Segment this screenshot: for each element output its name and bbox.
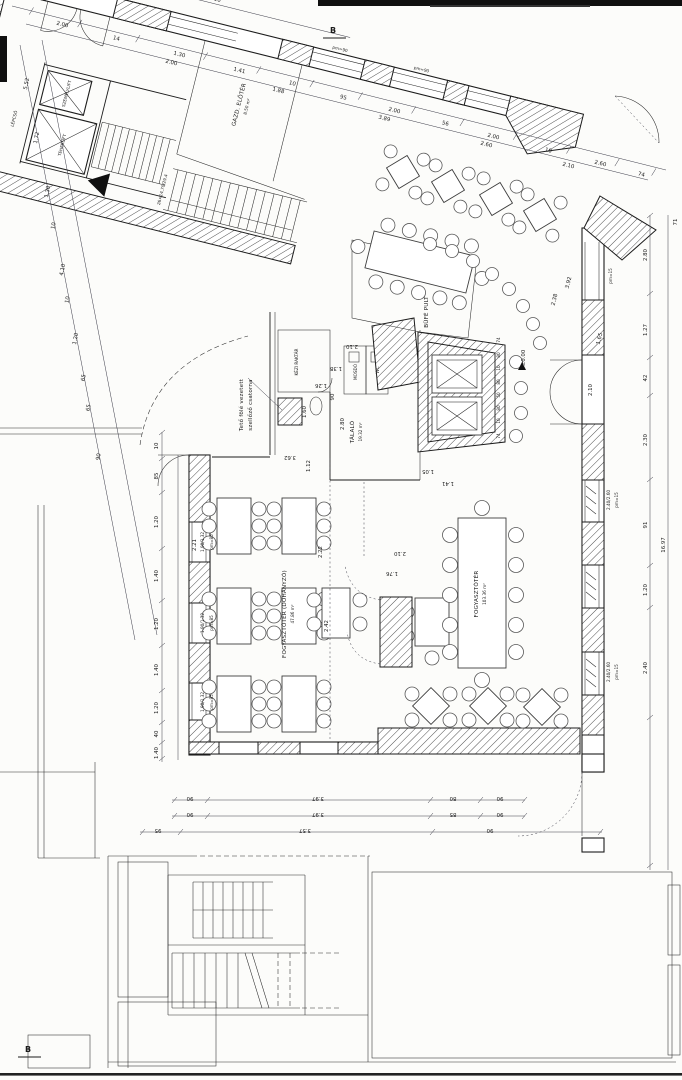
- window-tag: 1.90/1.32: [200, 692, 205, 712]
- dimension-label: 10: [544, 147, 553, 155]
- chair: [389, 279, 406, 296]
- window-tag: 2.40/2.60: [606, 662, 611, 682]
- room-area-servery: 19.32 m²: [358, 422, 363, 441]
- dimension-label: 5.52: [23, 77, 31, 90]
- dimension-label: 4.10: [59, 263, 67, 276]
- dimension-label: 1.20: [643, 583, 649, 596]
- dimension-label: 90: [486, 827, 493, 833]
- dimension-label: 1.12: [306, 460, 312, 472]
- dimension-label: 1.20: [154, 617, 160, 630]
- dimension-label: 2.80: [340, 417, 346, 430]
- tilted-street-block: SZEMÉLYLIFT TEHERLIFT LÉPCSŐ 26×14,70/29…: [0, 0, 590, 324]
- dimension-label: 90: [95, 452, 102, 460]
- window-tag: pm=85: [209, 694, 214, 710]
- dimension-label: 2.80: [643, 248, 649, 261]
- room-label-stairs: LÉPCSŐ: [10, 109, 19, 127]
- dimension-label: 1.27: [643, 324, 649, 336]
- stair-note: 26×14,70/29,4: [156, 173, 169, 205]
- room-label-buffet: BÜFÉ PULT: [422, 296, 430, 328]
- dimension-label: 1.60: [302, 405, 308, 418]
- dimension-label: 1.20: [154, 515, 160, 528]
- dimension-label: 2.42: [324, 620, 330, 632]
- dimension-label: 74: [496, 337, 501, 343]
- room-area-vestibule: 8.50 m²: [242, 98, 251, 115]
- dimension-label: 90: [186, 795, 193, 801]
- top-right-entry: [615, 96, 659, 143]
- section-marker-top: B: [330, 26, 336, 35]
- diamond-table: [375, 144, 432, 201]
- room-label-dining-main: FOGYASZTÓTÉR: [472, 571, 480, 618]
- dimension-label: 2.10: [562, 162, 576, 171]
- scan-artifacts: [0, 0, 682, 1076]
- dining-tables-left: [202, 498, 331, 732]
- dimension-label: 80: [496, 405, 501, 411]
- dimension-label: 40: [154, 730, 160, 737]
- dimension-label: 91: [643, 522, 649, 529]
- dimension-label: 2.10: [345, 343, 358, 349]
- dimension-label: 10: [288, 80, 297, 88]
- window-tag: pm=85: [209, 615, 214, 631]
- dimension-label: 2.10: [588, 383, 594, 396]
- dimension-label: 1.88: [272, 87, 286, 96]
- dimension-label: 10: [64, 295, 71, 303]
- dimension-label: 1.26: [314, 382, 327, 388]
- dimension-label: 10: [496, 418, 501, 424]
- dimension-label: 1.38: [329, 365, 342, 371]
- vent-note-line1: Tető fölé vezetett: [238, 378, 245, 432]
- dimension-label: 2.00: [388, 107, 402, 116]
- dining-pier: [380, 597, 412, 667]
- dimension-label: 95: [339, 94, 347, 101]
- dimension-label: 3.97: [312, 795, 324, 801]
- diamond-table: [468, 171, 525, 228]
- room-area-dining-smoking: 47.86 m²: [290, 604, 295, 623]
- dimension-label: 95: [155, 827, 162, 833]
- dimension-label: 1.05: [422, 468, 434, 474]
- dimension-label: 85: [154, 473, 160, 480]
- stair-direction-arrow: [85, 169, 110, 197]
- dimension-label: 1.76: [385, 570, 398, 576]
- dimension-label: 1.41: [233, 67, 246, 76]
- room-area-dining-main: 103.36 m²: [482, 583, 487, 605]
- dimension-label: 80: [496, 352, 501, 358]
- dimension-label: 2.00: [165, 59, 179, 68]
- floorplan-drawing: SZEMÉLYLIFT TEHERLIFT LÉPCSŐ 26×14,70/29…: [0, 0, 682, 1080]
- room-label-servery: TÁLALÓ: [349, 420, 356, 444]
- dimension-label: 10: [496, 365, 501, 371]
- dimension-label: 2.10: [393, 550, 406, 556]
- dimension-label: 10: [50, 221, 57, 229]
- dimension-label: 2.00: [56, 21, 70, 30]
- dimension-label: 65: [85, 404, 92, 412]
- dimension-label: 1.40: [154, 663, 160, 676]
- diamond-table: [420, 158, 477, 215]
- dimension-label: 50: [496, 392, 501, 398]
- chair: [367, 273, 384, 290]
- dimension-label: 3.97: [312, 811, 324, 817]
- dimension-label: 56: [441, 120, 450, 128]
- level-mark: ±0.00: [521, 349, 527, 366]
- dimension-label: 2.60: [594, 160, 608, 169]
- dimension-label: 74: [496, 433, 501, 439]
- dining-tables-bottom: [405, 687, 568, 728]
- dimension-label: 80: [496, 379, 501, 385]
- dimension-label: 1.30: [173, 51, 187, 60]
- window-tag: pm=85: [209, 534, 214, 550]
- dimension-label: 2.38: [551, 293, 560, 307]
- dimension-label: 90: [186, 811, 193, 817]
- dimension-label: 2.30: [643, 433, 649, 446]
- dimension-label: 71: [673, 219, 679, 226]
- dimension-label: 1.40: [154, 746, 160, 759]
- window-tag: 1.90/1.32: [200, 613, 205, 633]
- dimension-label: 3.62: [284, 454, 296, 460]
- lower-stair-flight-1: [193, 882, 273, 938]
- window-tag: 1.90/1.32: [200, 532, 205, 552]
- dimension-label: 2.21: [192, 539, 198, 551]
- window-tag: 2.40/2.60: [606, 490, 611, 510]
- diamond-table: [512, 187, 569, 244]
- window-tag: pm=15: [614, 664, 619, 680]
- lower-stair-flight-2: [172, 953, 340, 1008]
- dimension-label: 3.92: [565, 276, 574, 289]
- chair: [401, 222, 418, 239]
- chair: [379, 217, 396, 234]
- chair: [431, 289, 448, 306]
- dimension-label: 3.57: [299, 827, 311, 833]
- chair: [463, 237, 480, 254]
- window-tag: pm=15: [614, 492, 619, 508]
- dimension-label: 80: [449, 795, 456, 801]
- room-label-hand-store: KÉZI RAKTÁR: [294, 348, 299, 375]
- lower-building: [28, 856, 680, 1068]
- dimension-label: 1.40: [154, 569, 160, 582]
- dimension-label: 3.89: [378, 115, 392, 124]
- bar-counter: [418, 332, 505, 452]
- dimension-label: 2.22: [318, 546, 324, 558]
- room-label-wc: WC: [375, 366, 380, 373]
- room-label-washroom: MOSDÓ: [353, 363, 358, 380]
- dimension-label: 90: [496, 795, 503, 801]
- floorplan-scan: SZEMÉLYLIFT TEHERLIFT LÉPCSŐ 26×14,70/29…: [0, 0, 682, 1080]
- vent-note-line2: szellőző csatorna: [248, 379, 254, 431]
- dimension-label: 1.41: [442, 480, 454, 486]
- dimension-label: 65: [80, 374, 87, 382]
- dimension-label-total: 16.97: [661, 537, 667, 552]
- window-tag: pm=15: [608, 268, 613, 284]
- dimension-label: 90: [496, 811, 503, 817]
- chair: [451, 294, 468, 311]
- dimension-label: 2.40: [643, 661, 649, 674]
- vent-duct: [278, 398, 302, 425]
- dimension-label: 90: [330, 393, 336, 400]
- dimension-label: 85: [450, 811, 457, 817]
- dimension-label: 1.20: [154, 701, 160, 714]
- dimension-label: 42: [643, 375, 649, 382]
- dimension-label: 10: [154, 442, 160, 449]
- dimension-label: 1.20: [72, 332, 80, 345]
- room-label-dining-smoking: FOGYASZTÓTÉR (DOHÁNYZÓ): [280, 570, 288, 658]
- section-marker-bottom: B: [25, 1045, 31, 1054]
- dimension-label: 2.60: [480, 141, 494, 150]
- dimension-label: 14: [112, 35, 121, 43]
